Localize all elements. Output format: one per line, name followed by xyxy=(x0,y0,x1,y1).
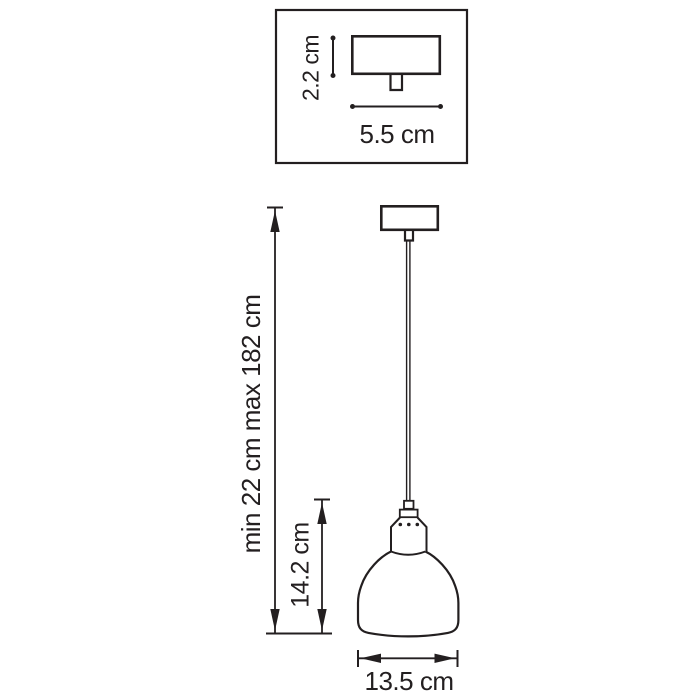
line-art xyxy=(0,0,700,700)
detail-width-dim-line xyxy=(350,104,443,109)
lampshade-outline xyxy=(358,552,458,637)
socket-cap xyxy=(400,510,418,518)
shade-height-label: 14.2 cm xyxy=(289,522,314,607)
ceiling-mount-outline xyxy=(381,206,438,230)
shade-width-label: 13.5 cm xyxy=(365,668,454,694)
canopy-height-label: 2.2 cm xyxy=(300,35,323,101)
pendant-lamp-dimension-drawing: 2.2 cm 5.5 cm min 22 cm max 182 cm 14.2 … xyxy=(0,0,700,700)
canopy-width-label: 5.5 cm xyxy=(359,121,434,147)
mount-connector xyxy=(405,231,413,241)
detail-height-dim-line xyxy=(331,36,336,79)
socket-body xyxy=(391,518,427,552)
detail-canopy-outline xyxy=(352,36,440,74)
shade-height-dim-line xyxy=(314,500,330,634)
suspension-cord xyxy=(407,242,410,501)
shade-width-dim-line xyxy=(358,650,458,667)
socket-vent-holes xyxy=(399,523,420,527)
detail-canopy-stem xyxy=(391,75,403,90)
cord-grip xyxy=(404,501,414,509)
overall-height-label: min 22 cm max 182 cm xyxy=(238,295,264,554)
